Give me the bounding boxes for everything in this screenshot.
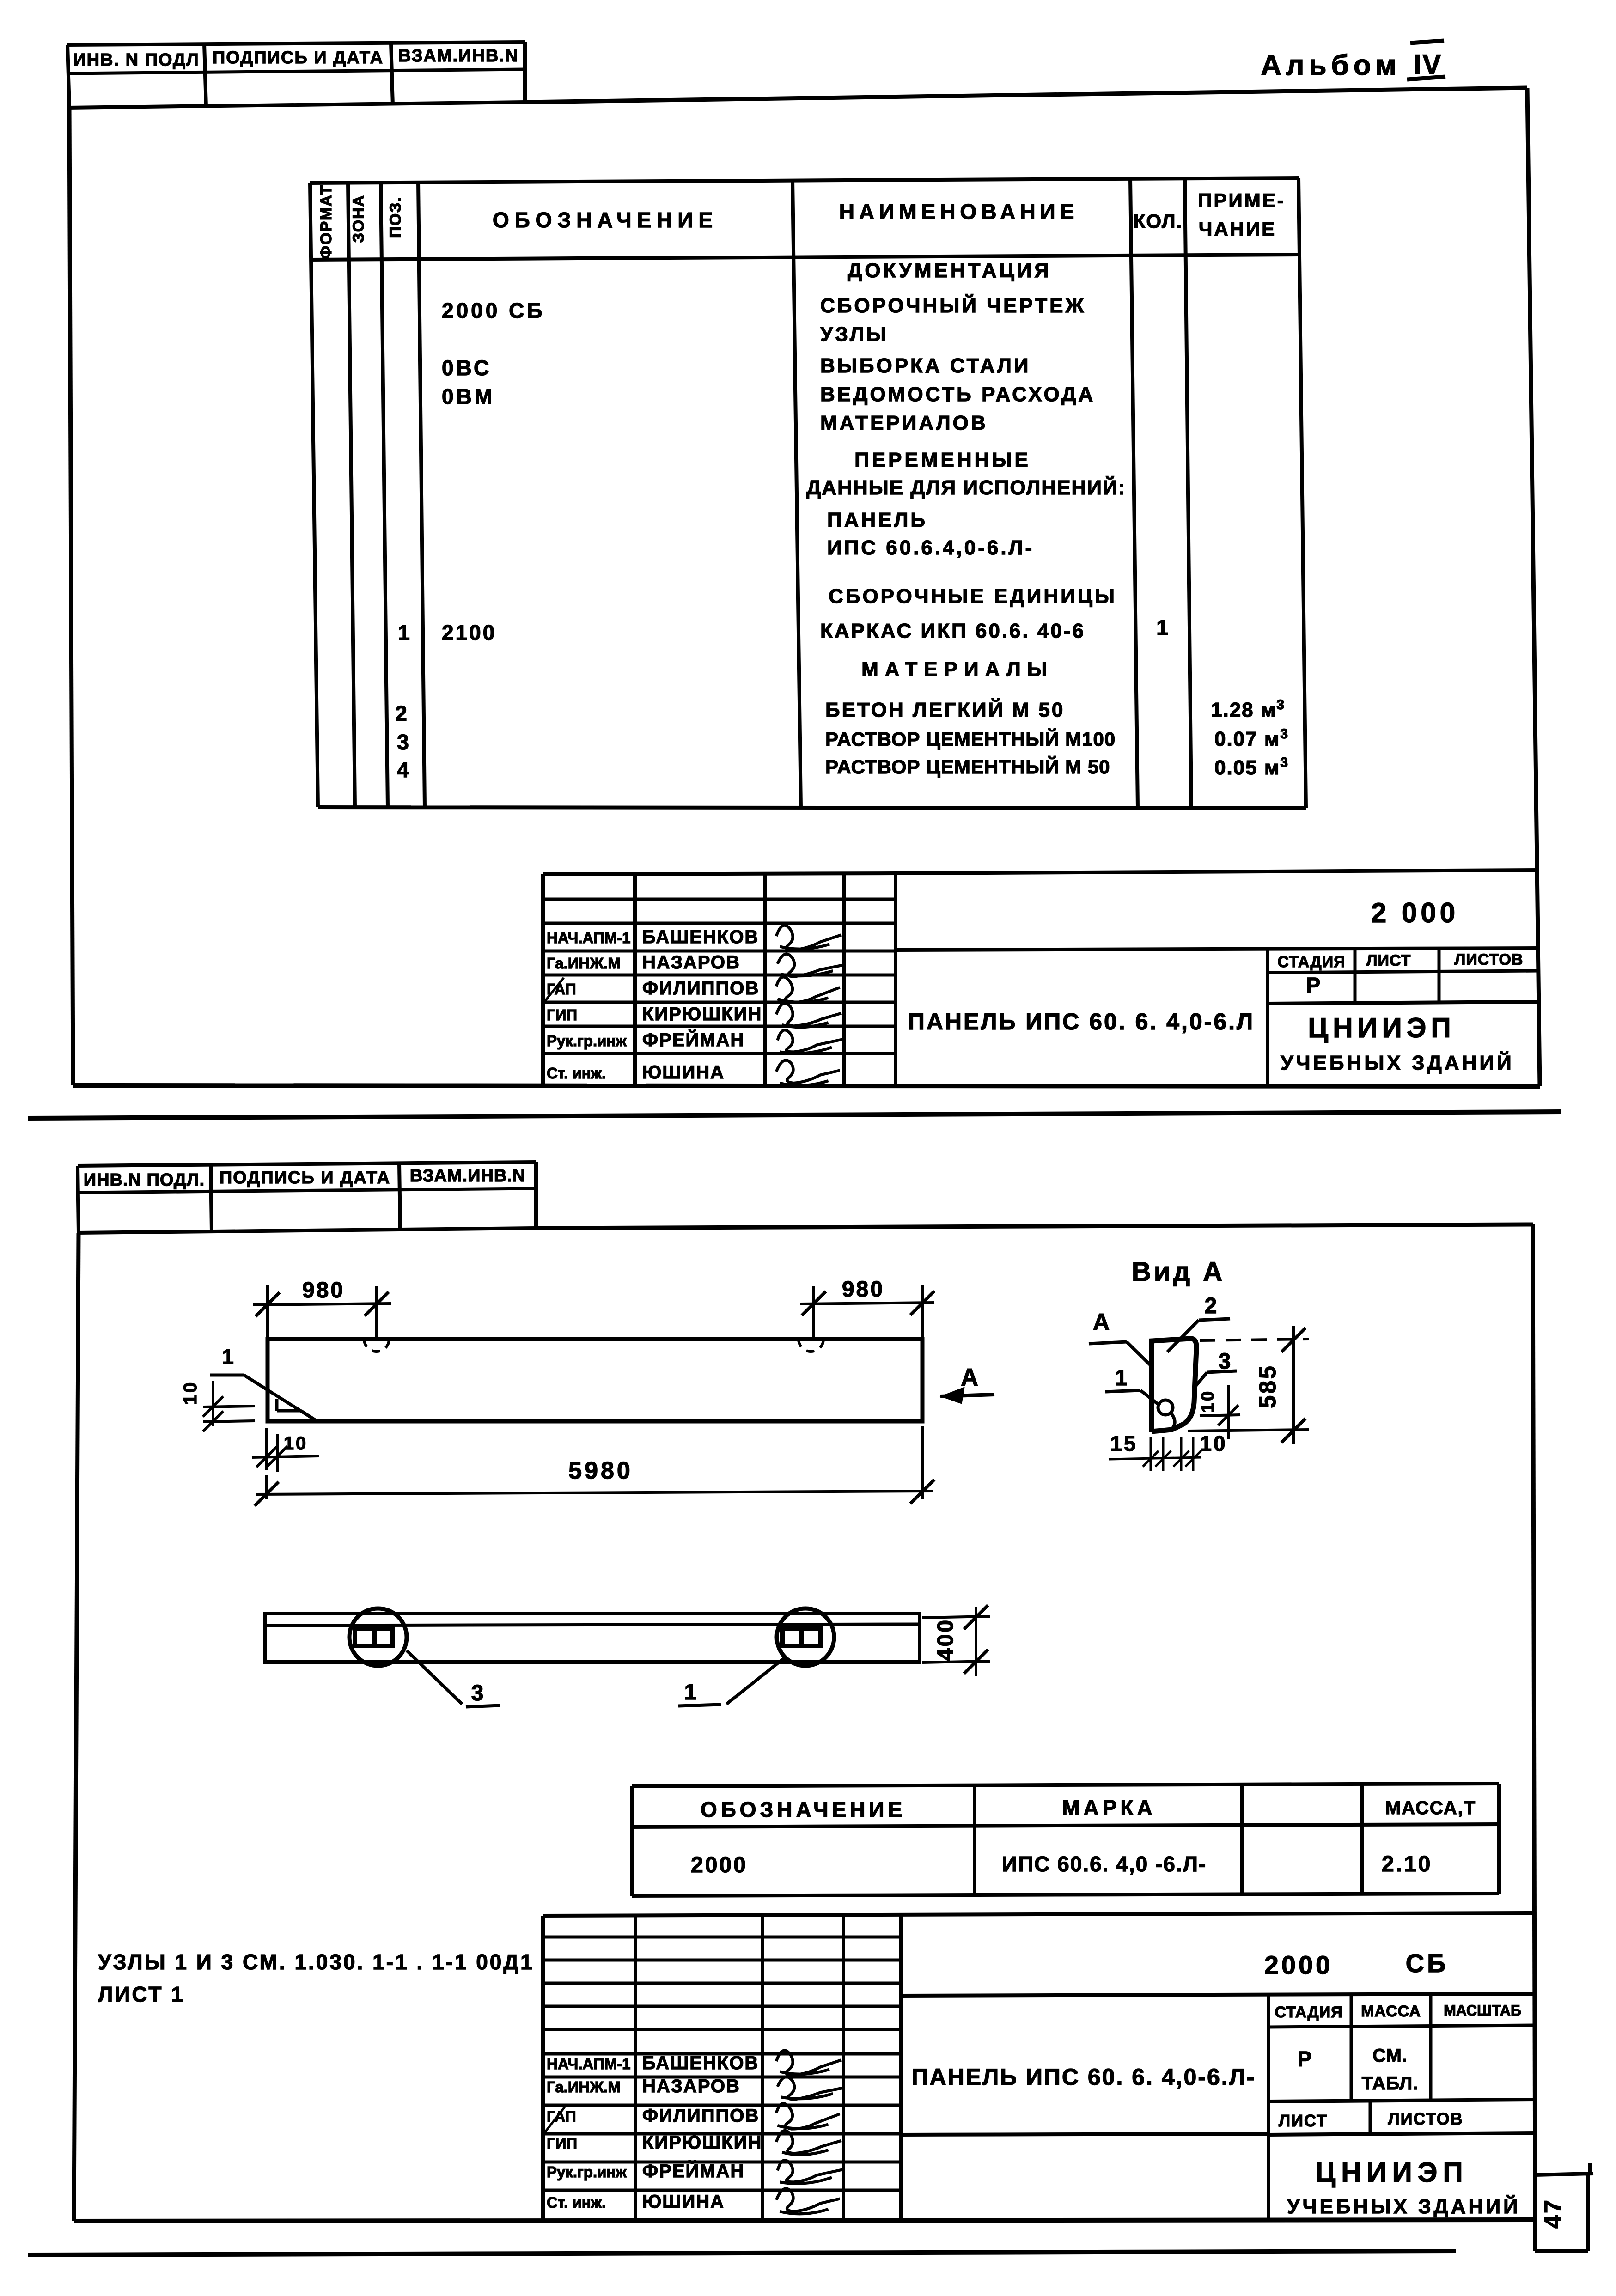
svg-text:1: 1 bbox=[1156, 615, 1170, 639]
svg-text:УЗЛЫ 1 И 3 СМ. 1.030. 1-1 . 1-: УЗЛЫ 1 И 3 СМ. 1.030. 1-1 . 1-1 00Д1 bbox=[98, 1950, 534, 1974]
svg-text:400: 400 bbox=[933, 1618, 958, 1661]
svg-text:Рук.гр.инж: Рук.гр.инж bbox=[547, 2163, 627, 2180]
svg-text:5980: 5980 bbox=[568, 1457, 633, 1484]
svg-text:ИНВ. N ПОДЛ: ИНВ. N ПОДЛ bbox=[73, 50, 199, 70]
svg-text:МАССА,Т: МАССА,Т bbox=[1385, 1798, 1476, 1818]
svg-text:НАЗАРОВ: НАЗАРОВ bbox=[642, 952, 740, 973]
svg-text:0.07 м3: 0.07 м3 bbox=[1214, 726, 1289, 750]
svg-text:2100: 2100 bbox=[442, 621, 496, 645]
svg-text:Р: Р bbox=[1298, 2047, 1314, 2071]
svg-text:4: 4 bbox=[397, 758, 411, 782]
svg-text:А: А bbox=[1093, 1309, 1111, 1335]
svg-text:ДОКУМЕНТАЦИЯ: ДОКУМЕНТАЦИЯ bbox=[848, 259, 1052, 282]
svg-text:СТАДИЯ: СТАДИЯ bbox=[1275, 2004, 1342, 2021]
svg-text:ФРЕЙМАН: ФРЕЙМАН bbox=[642, 2160, 744, 2181]
svg-text:ЮШИНА: ЮШИНА bbox=[642, 1062, 725, 1083]
svg-text:ЛИСТОВ: ЛИСТОВ bbox=[1455, 951, 1524, 968]
svg-text:10: 10 bbox=[180, 1381, 201, 1405]
svg-text:ВЗАМ.ИНВ.N: ВЗАМ.ИНВ.N bbox=[398, 46, 519, 66]
svg-text:0ВМ: 0ВМ bbox=[442, 384, 495, 408]
svg-text:2.10: 2.10 bbox=[1382, 1852, 1432, 1876]
svg-text:НАИМЕНОВАНИЕ: НАИМЕНОВАНИЕ bbox=[839, 200, 1079, 224]
svg-text:Ст. инж.: Ст. инж. bbox=[547, 1065, 606, 1082]
svg-text:ОБОЗНАЧЕНИЕ: ОБОЗНАЧЕНИЕ bbox=[493, 208, 718, 232]
svg-text:0.05 м3: 0.05 м3 bbox=[1214, 755, 1289, 779]
svg-text:КОЛ.: КОЛ. bbox=[1134, 210, 1183, 232]
svg-text:ИНВ.N ПОДЛ.: ИНВ.N ПОДЛ. bbox=[84, 1170, 205, 1190]
svg-text:ПАНЕЛЬ ИПС 60. 6. 4,0-6.Л-: ПАНЕЛЬ ИПС 60. 6. 4,0-6.Л- bbox=[912, 2064, 1256, 2090]
svg-text:0ВС: 0ВС bbox=[442, 356, 492, 380]
svg-text:НАЧ.АПМ-1: НАЧ.АПМ-1 bbox=[547, 2055, 630, 2072]
svg-text:2000 СБ: 2000 СБ bbox=[442, 298, 545, 323]
svg-text:ЦНИИЭП: ЦНИИЭП bbox=[1315, 2157, 1468, 2188]
svg-text:ВЕДОМОСТЬ РАСХОДА: ВЕДОМОСТЬ РАСХОДА bbox=[820, 383, 1095, 406]
svg-text:ДАННЫЕ ДЛЯ ИСПОЛНЕНИЙ:: ДАННЫЕ ДЛЯ ИСПОЛНЕНИЙ: bbox=[806, 475, 1126, 499]
svg-text:ГИП: ГИП bbox=[547, 2135, 577, 2152]
svg-text:ГИП: ГИП bbox=[547, 1006, 577, 1023]
svg-text:10: 10 bbox=[1198, 1389, 1218, 1413]
svg-text:1: 1 bbox=[222, 1345, 236, 1369]
svg-text:МАТЕРИАЛОВ: МАТЕРИАЛОВ bbox=[820, 412, 988, 434]
svg-text:Рук.гр.инж: Рук.гр.инж bbox=[547, 1032, 627, 1049]
svg-text:ПАНЕЛЬ ИПС 60. 6. 4,0-6.Л: ПАНЕЛЬ ИПС 60. 6. 4,0-6.Л bbox=[908, 1009, 1255, 1035]
svg-text:ПОДПИСЬ И ДАТА: ПОДПИСЬ И ДАТА bbox=[220, 1168, 390, 1188]
svg-text:НАЧ.АПМ-1: НАЧ.АПМ-1 bbox=[547, 929, 630, 946]
svg-text:1: 1 bbox=[684, 1680, 699, 1705]
svg-text:УЧЕБНЫХ ЗДАНИЙ: УЧЕБНЫХ ЗДАНИЙ bbox=[1287, 2194, 1520, 2218]
svg-text:ЛИСТОВ: ЛИСТОВ bbox=[1388, 2109, 1463, 2128]
svg-text:ИПС 60.6. 4,0 -6.Л-: ИПС 60.6. 4,0 -6.Л- bbox=[1002, 1852, 1207, 1876]
svg-text:КИРЮШКИН: КИРЮШКИН bbox=[642, 1004, 762, 1024]
svg-text:СБ: СБ bbox=[1406, 1949, 1449, 1978]
svg-text:ЮШИНА: ЮШИНА bbox=[642, 2192, 725, 2212]
svg-text:980: 980 bbox=[302, 1278, 345, 1303]
svg-text:1: 1 bbox=[398, 621, 412, 645]
svg-text:ПОЗ.: ПОЗ. bbox=[387, 196, 404, 238]
svg-text:ФИЛИППОВ: ФИЛИППОВ bbox=[642, 2106, 759, 2126]
svg-text:РАСТВОР ЦЕМЕНТНЫЙ М 50: РАСТВОР ЦЕМЕНТНЫЙ М 50 bbox=[825, 755, 1110, 778]
svg-text:УЧЕБНЫХ ЗДАНИЙ: УЧЕБНЫХ ЗДАНИЙ bbox=[1281, 1051, 1514, 1074]
svg-text:47: 47 bbox=[1540, 2198, 1567, 2229]
svg-text:ПАНЕЛЬ: ПАНЕЛЬ bbox=[827, 509, 927, 531]
svg-text:ПОДПИСЬ И ДАТА: ПОДПИСЬ И ДАТА bbox=[213, 48, 384, 67]
svg-text:10: 10 bbox=[284, 1433, 308, 1454]
svg-text:ФОРМАТ: ФОРМАТ bbox=[317, 184, 335, 259]
svg-text:10: 10 bbox=[1200, 1431, 1227, 1456]
svg-text:РАСТВОР ЦЕМЕНТНЫЙ М100: РАСТВОР ЦЕМЕНТНЫЙ М100 bbox=[825, 728, 1116, 750]
svg-text:3: 3 bbox=[397, 730, 411, 754]
svg-text:НАЗАРОВ: НАЗАРОВ bbox=[642, 2076, 740, 2096]
svg-text:1: 1 bbox=[1115, 1366, 1129, 1390]
svg-text:ВЗАМ.ИНВ.N: ВЗАМ.ИНВ.N bbox=[410, 1166, 526, 1186]
svg-text:СТАДИЯ: СТАДИЯ bbox=[1277, 953, 1345, 971]
svg-text:2000: 2000 bbox=[1264, 1950, 1333, 1979]
svg-text:СБОРОЧНЫЕ ЕДИНИЦЫ: СБОРОЧНЫЕ ЕДИНИЦЫ bbox=[829, 585, 1117, 608]
svg-text:2 000: 2 000 bbox=[1371, 897, 1459, 928]
svg-text:СБОРОЧНЫЙ ЧЕРТЕЖ: СБОРОЧНЫЙ ЧЕРТЕЖ bbox=[820, 293, 1086, 317]
svg-text:КАРКАС ИКП 60.6. 40-6: КАРКАС ИКП 60.6. 40-6 bbox=[820, 620, 1085, 642]
svg-text:980: 980 bbox=[842, 1277, 884, 1302]
svg-text:ОБОЗНАЧЕНИЕ: ОБОЗНАЧЕНИЕ bbox=[701, 1797, 906, 1821]
svg-text:ПРИМЕ-: ПРИМЕ- bbox=[1198, 189, 1285, 211]
svg-text:ЗОНА: ЗОНА bbox=[350, 195, 367, 243]
svg-text:Вид А: Вид А bbox=[1132, 1257, 1225, 1287]
svg-text:ЛИСТ: ЛИСТ bbox=[1279, 2111, 1328, 2130]
svg-text:ЛИСТ 1: ЛИСТ 1 bbox=[98, 1982, 185, 2006]
svg-text:БАШЕНКОВ: БАШЕНКОВ bbox=[642, 927, 759, 947]
svg-text:ЧАНИЕ: ЧАНИЕ bbox=[1199, 218, 1276, 240]
svg-text:Ст. инж.: Ст. инж. bbox=[547, 2194, 606, 2211]
svg-text:15: 15 bbox=[1110, 1431, 1137, 1456]
svg-text:ФИЛИППОВ: ФИЛИППОВ bbox=[642, 978, 759, 999]
svg-text:585: 585 bbox=[1255, 1364, 1281, 1408]
svg-text:3: 3 bbox=[471, 1681, 486, 1705]
svg-text:Га.ИНЖ.М: Га.ИНЖ.М bbox=[547, 2078, 621, 2095]
svg-text:КИРЮШКИН: КИРЮШКИН bbox=[642, 2132, 762, 2153]
svg-text:ИПС 60.6.4,0-6.Л-: ИПС 60.6.4,0-6.Л- bbox=[827, 536, 1034, 559]
svg-text:БЕТОН ЛЕГКИЙ М 50: БЕТОН ЛЕГКИЙ М 50 bbox=[825, 698, 1065, 721]
svg-text:МАТЕРИАЛЫ: МАТЕРИАЛЫ bbox=[861, 658, 1054, 681]
svg-text:ЛИСТ: ЛИСТ bbox=[1366, 952, 1411, 969]
svg-text:ТАБЛ.: ТАБЛ. bbox=[1362, 2073, 1419, 2094]
svg-text:1.28 м3: 1.28 м3 bbox=[1211, 697, 1285, 721]
svg-text:СМ.: СМ. bbox=[1372, 2046, 1408, 2066]
svg-text:Альбом: Альбом bbox=[1261, 49, 1401, 81]
svg-text:МАРКА: МАРКА bbox=[1062, 1796, 1156, 1820]
svg-text:УЗЛЫ: УЗЛЫ bbox=[820, 323, 889, 346]
svg-text:2: 2 bbox=[395, 701, 409, 725]
svg-text:ВЫБОРКА СТАЛИ: ВЫБОРКА СТАЛИ bbox=[820, 354, 1031, 377]
svg-text:2000: 2000 bbox=[691, 1853, 748, 1877]
svg-text:БАШЕНКОВ: БАШЕНКОВ bbox=[642, 2053, 759, 2073]
svg-text:2: 2 bbox=[1205, 1294, 1219, 1318]
svg-text:МАСШТАБ: МАСШТАБ bbox=[1444, 2002, 1521, 2019]
svg-text:МАССА: МАССА bbox=[1361, 2003, 1421, 2020]
svg-text:Га.ИНЖ.М: Га.ИНЖ.М bbox=[547, 955, 621, 972]
svg-text:ФРЕЙМАН: ФРЕЙМАН bbox=[642, 1029, 744, 1050]
svg-text:ЦНИИЭП: ЦНИИЭП bbox=[1308, 1012, 1455, 1043]
svg-text:Р: Р bbox=[1306, 973, 1321, 997]
svg-text:А: А bbox=[961, 1364, 980, 1391]
svg-text:ПЕРЕМЕННЫЕ: ПЕРЕМЕННЫЕ bbox=[854, 449, 1031, 471]
